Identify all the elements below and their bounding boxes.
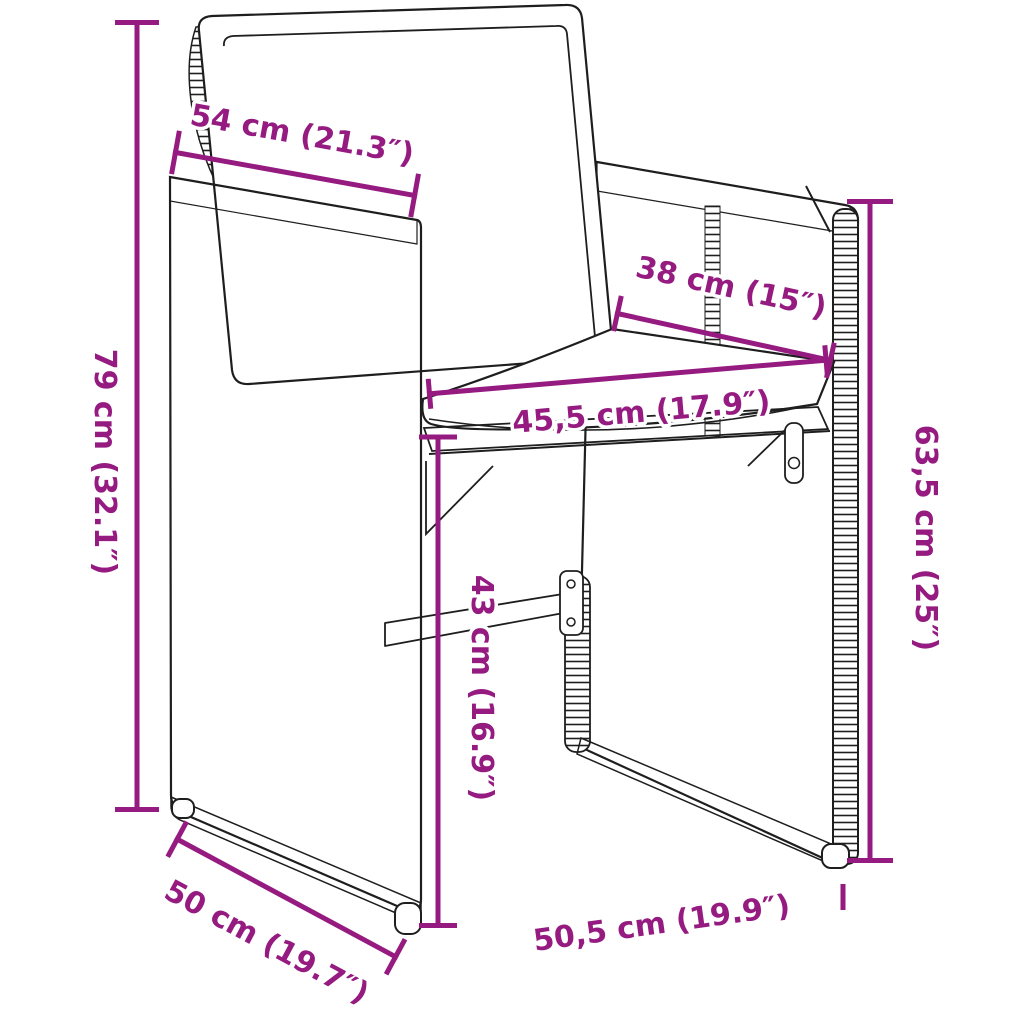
left-front-foot — [395, 903, 421, 934]
dimension-cap — [386, 939, 405, 974]
right-bottom-rail — [577, 738, 836, 864]
dimension-50cm: 50 cm (19.7″) — [144, 820, 408, 1016]
dimension-label-base-width: 50,5 cm (19.9″) — [531, 888, 792, 959]
left-back-foot — [172, 799, 194, 818]
chair-dimension-diagram: 54 cm (21.3″) 79 cm (32.1″) 38 cm (15″) … — [0, 0, 1024, 1024]
under-seat-structure — [385, 423, 803, 646]
dimension-label-seat-height: 43 cm (16.9″) — [464, 575, 499, 802]
seat-frame-rail — [429, 431, 830, 454]
dimension-label-base-depth: 50 cm (19.7″) — [158, 873, 374, 1011]
dimension-label-seat-depth: 38 cm (15″) — [632, 250, 829, 326]
dimension-label-left-height: 79 cm (32.1″) — [87, 349, 122, 576]
dimension-63-5cm: 63,5 cm (25″) — [847, 199, 943, 863]
dimension-79cm: 79 cm (32.1″) — [87, 20, 159, 812]
dimension-cap — [825, 345, 828, 375]
dimension-label-right-height: 63,5 cm (25″) — [908, 425, 943, 652]
right-corner-brace — [785, 423, 803, 483]
corner-bracket-top — [806, 186, 830, 232]
dimension-43cm: 43 cm (16.9″) — [419, 435, 499, 928]
dimension-50-5cm: 50,5 cm (19.9″) — [531, 884, 843, 959]
dimension-cap — [168, 822, 187, 857]
dimension-cap — [428, 379, 431, 409]
dimension-diagram-canvas: 54 cm (21.3″) 79 cm (32.1″) 38 cm (15″) … — [0, 0, 1024, 1024]
front-right-post — [833, 209, 858, 864]
right-front-foot — [822, 844, 849, 868]
